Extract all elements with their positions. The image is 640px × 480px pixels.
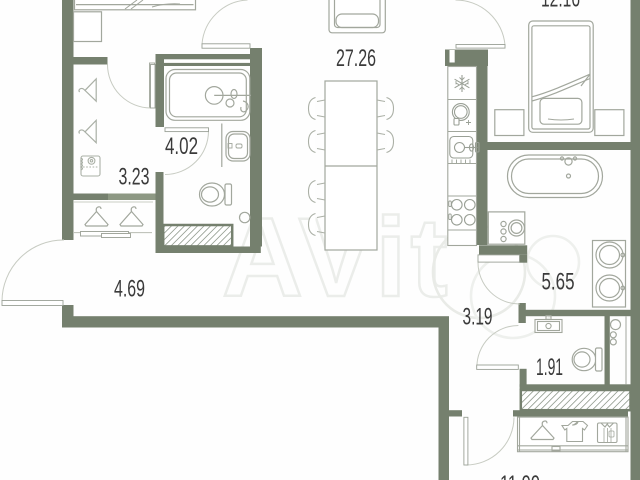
- svg-text:5.65: 5.65: [542, 269, 575, 296]
- svg-text:3.19: 3.19: [463, 304, 493, 331]
- svg-text:3.23: 3.23: [119, 164, 150, 191]
- svg-text:1.91: 1.91: [536, 354, 563, 381]
- svg-text:4.69: 4.69: [114, 276, 145, 303]
- svg-text:11.99: 11.99: [500, 471, 540, 480]
- svg-text:27.26: 27.26: [336, 45, 376, 72]
- svg-text:12.16: 12.16: [541, 0, 580, 13]
- svg-text:4.02: 4.02: [165, 133, 198, 160]
